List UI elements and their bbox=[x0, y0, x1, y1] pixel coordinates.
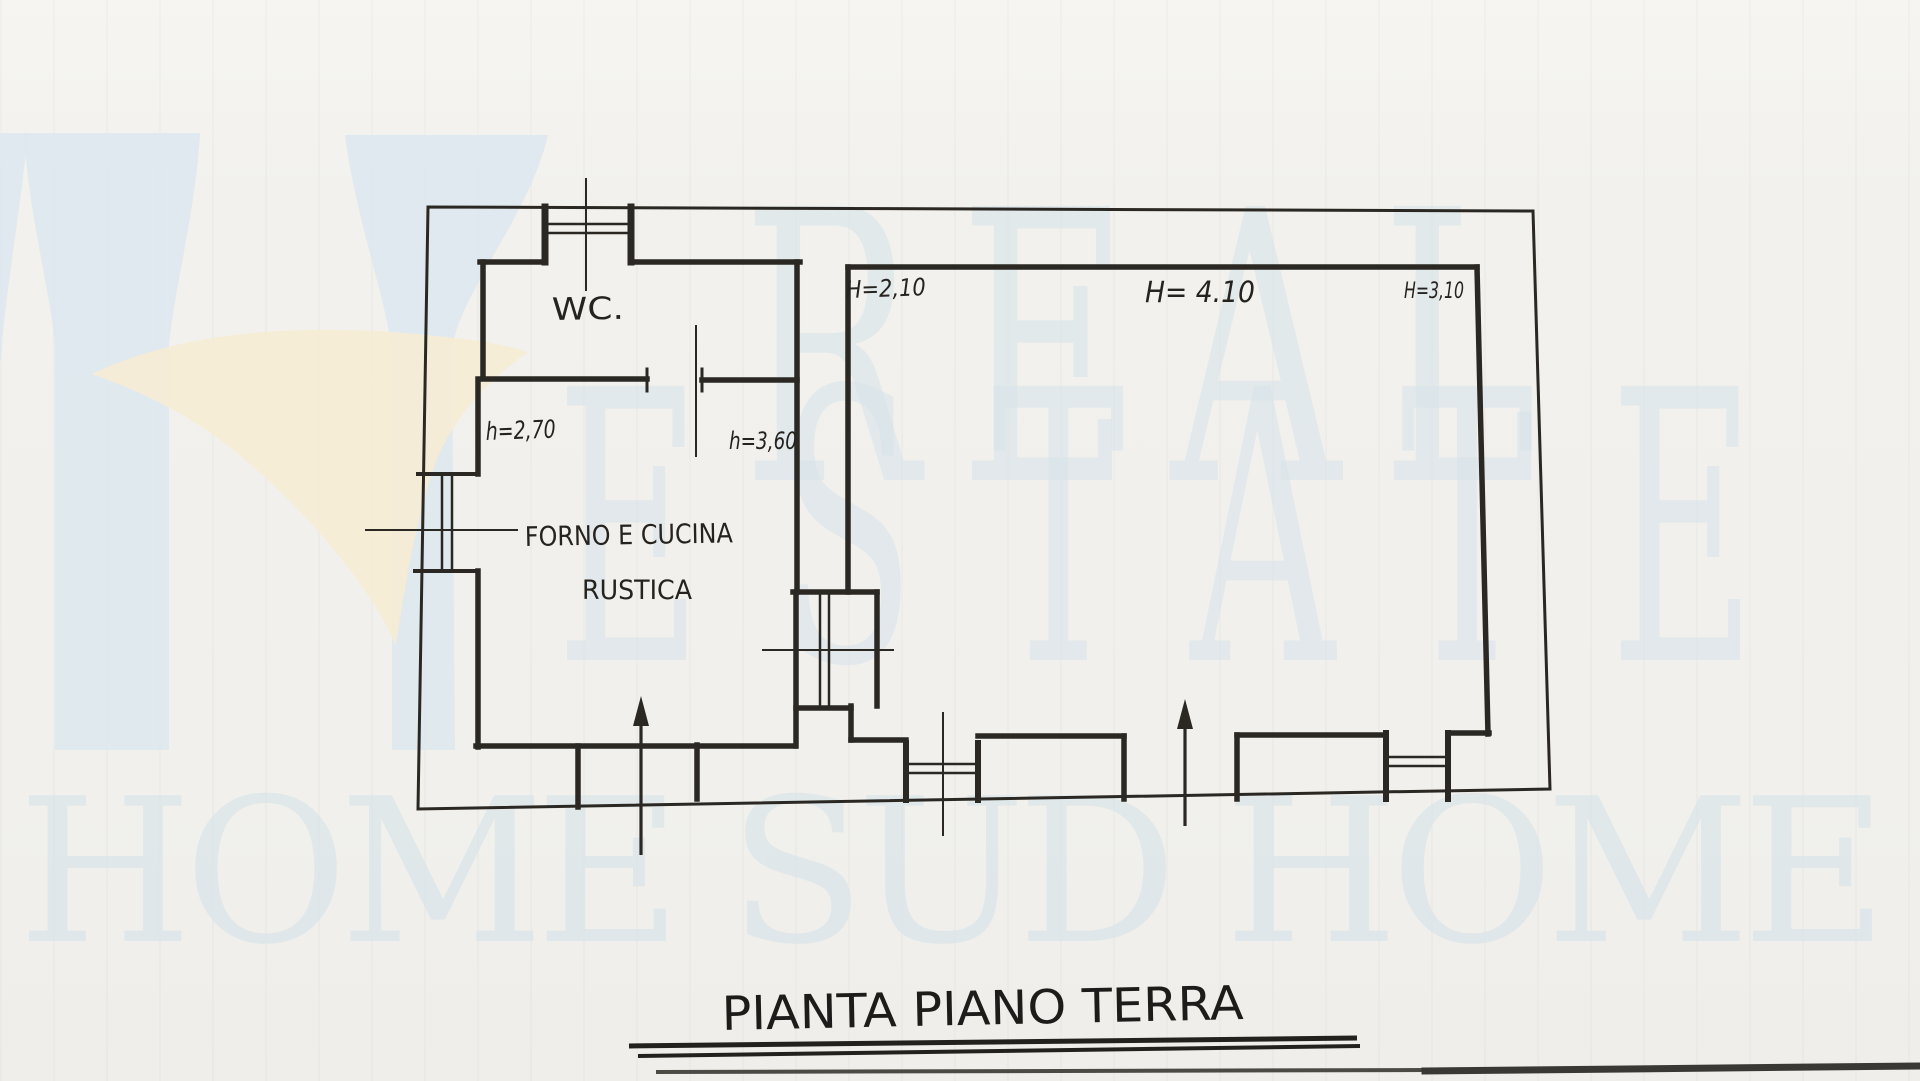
drawing-title-group: PIANTA PIANO TERRA bbox=[629, 976, 1360, 1056]
entrance-arrow-left bbox=[633, 696, 649, 855]
entrance-arrow-right bbox=[1177, 699, 1193, 826]
height-label-main-right: H=3,10 bbox=[1404, 279, 1464, 304]
room-label-wc: WC. bbox=[552, 291, 625, 328]
window-symbol-south-2 bbox=[1386, 733, 1448, 799]
title-underline bbox=[638, 1046, 1360, 1056]
drawing-title: PIANTA PIANO TERRA bbox=[721, 976, 1244, 1042]
plan-labels: WC. h=2,70 h=3,60 FORNO E CUCINA RUSTICA… bbox=[485, 273, 1464, 606]
height-label-main-center: H= 4.10 bbox=[1145, 275, 1255, 309]
wall bbox=[1477, 267, 1488, 734]
height-label-wc-room: h=2,70 bbox=[485, 415, 556, 446]
entrance-arrows bbox=[633, 696, 1193, 855]
window-symbol-top bbox=[545, 207, 631, 262]
scanned-floor-plan-page: REAL ESTATE HOME SUD HOME bbox=[0, 0, 1920, 1081]
scan-edge-line bbox=[658, 1066, 1920, 1072]
room-label-kitchen-line2: RUSTICA bbox=[582, 575, 692, 606]
height-label-hallway: h=3,60 bbox=[729, 427, 797, 455]
floor-plan-drawing: WC. h=2,70 h=3,60 FORNO E CUCINA RUSTICA… bbox=[0, 0, 1920, 1081]
room-label-kitchen-line1: FORNO E CUCINA bbox=[525, 518, 734, 553]
height-label-main-left: H=2,10 bbox=[845, 273, 926, 304]
